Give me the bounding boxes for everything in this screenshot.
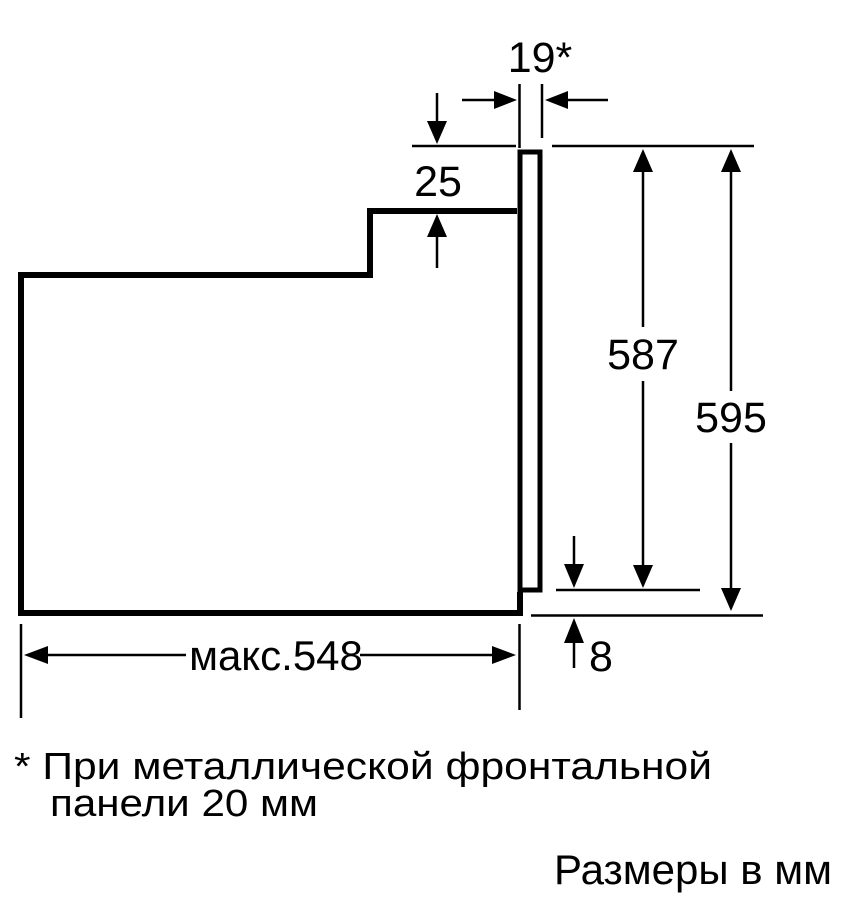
oven-body-outline [21, 211, 520, 613]
arrowhead-right [492, 646, 516, 664]
dim-total-height: 595 [695, 149, 767, 611]
dim-panel-height: 587 [607, 149, 679, 588]
footnote: * При металлической фронтальной панели 2… [14, 746, 712, 825]
dim-label-25: 25 [414, 158, 462, 206]
dim-front-panel-thickness: 19* [462, 34, 608, 148]
dim-top-step: 25 [412, 93, 516, 268]
arrowhead-right [494, 91, 517, 109]
dim-label-595: 595 [695, 394, 767, 442]
arrowhead-down [427, 121, 447, 144]
dim-bottom-offset: 8 [564, 536, 613, 681]
dim-label-max548: макс.548 [189, 632, 363, 679]
dim-max-depth: макс.548 [21, 624, 520, 718]
dim-label-587: 587 [607, 331, 679, 379]
dimension-drawing: 19* 25 587 595 [0, 0, 849, 900]
arrowhead-up [721, 149, 741, 172]
arrowhead-down [633, 565, 653, 588]
dim-label-19: 19* [508, 34, 573, 82]
front-panel-outline [520, 152, 540, 590]
arrowhead-down [564, 564, 584, 588]
arrowhead-up [633, 149, 653, 172]
arrowhead-down [721, 588, 741, 611]
footnote-line-1: * При металлической фронтальной [14, 746, 712, 788]
arrowhead-left [24, 646, 48, 664]
arrowhead-up [427, 214, 447, 237]
footnote-line-2: панели 20 мм [50, 783, 318, 825]
arrowhead-up [564, 618, 584, 643]
arrowhead-left [545, 91, 568, 109]
dim-label-8: 8 [589, 633, 613, 681]
oven-installation-diagram: 19* 25 587 595 [0, 0, 849, 900]
units-label: Размеры в мм [554, 846, 832, 893]
